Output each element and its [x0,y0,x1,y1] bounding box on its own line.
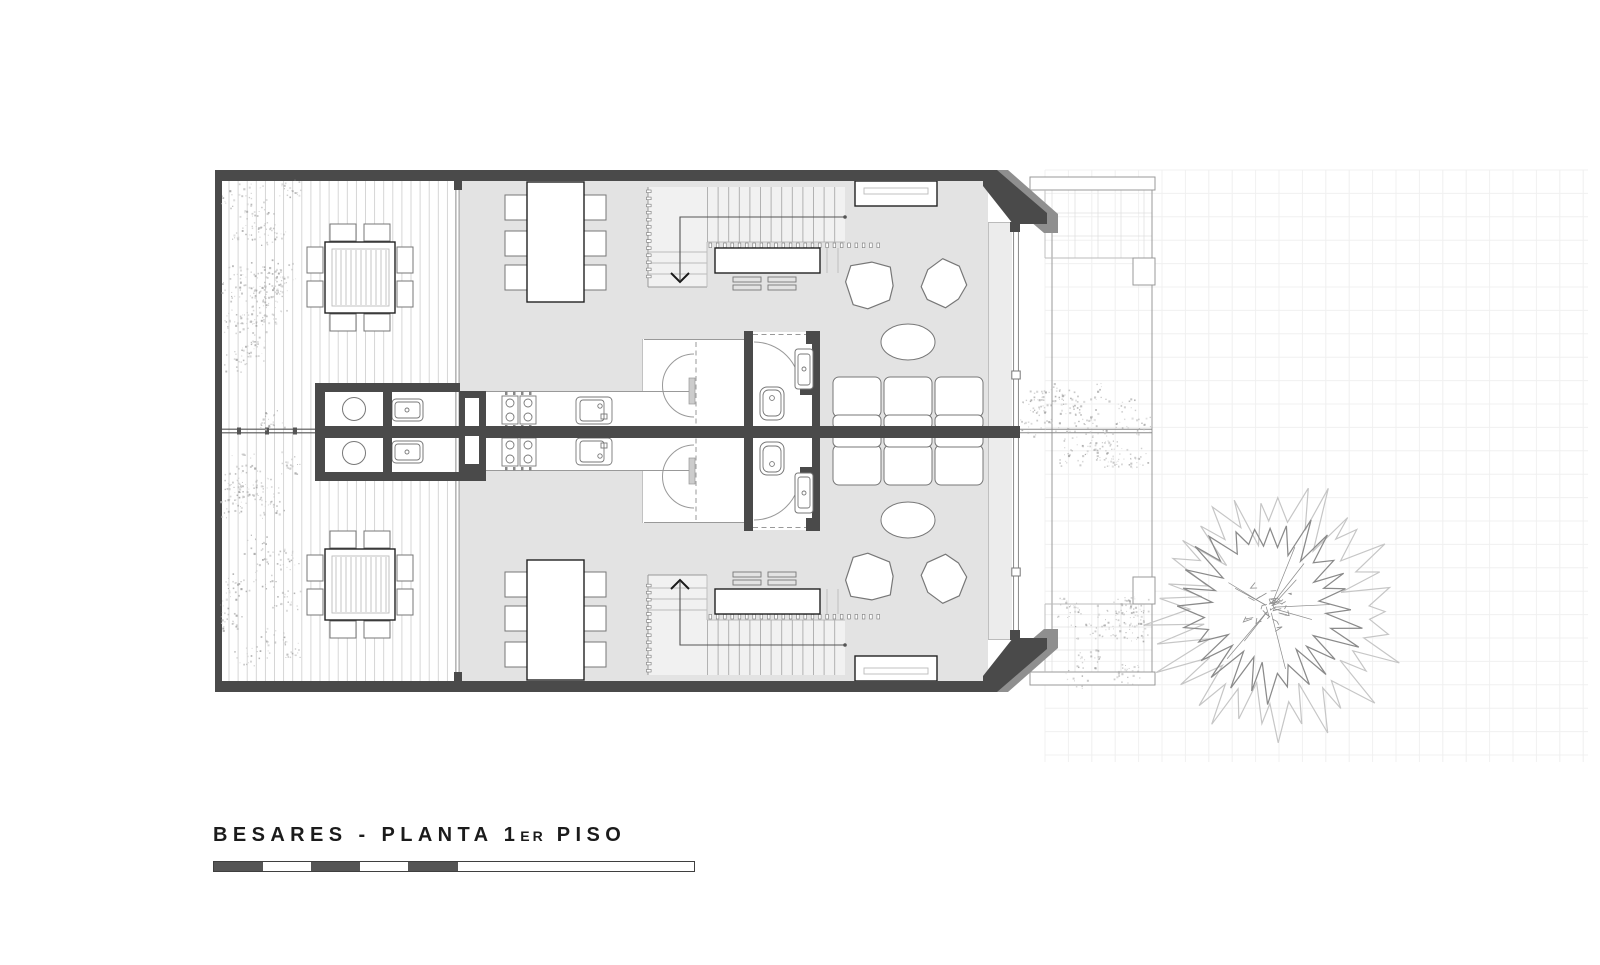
tree [1144,488,1399,743]
patio-beam-bottom [1030,672,1155,685]
deck-chair [307,247,323,273]
dining-chair [584,265,606,290]
scale-bar-segment [408,862,458,871]
title-text: BESARES - PLANTA 1 [213,824,520,846]
pivot-door-leaf [689,378,695,404]
glass-end-stub [1010,630,1020,640]
floor-plan-canvas [0,0,1600,965]
title-ordinal: ER [520,828,546,844]
deck-chair [307,281,323,307]
oval-coffee-table [881,324,935,360]
bathroom-wall [744,331,753,428]
glass-end-stub [454,672,462,681]
washbasin [795,349,813,389]
sofa-seat [833,377,881,417]
stair-landing [648,187,707,287]
deck-chair [330,314,356,331]
dining-chair [505,231,527,256]
exterior-wall-left [215,170,222,692]
fence-post [265,428,269,435]
deck-chair [397,281,413,307]
wall-heater [855,181,937,206]
fence-post [237,428,241,435]
deck-chair [397,247,413,273]
deck-chair [330,224,356,241]
party-wall [315,426,1020,438]
walkline-dot [843,215,847,219]
tree-canopy [1177,520,1362,705]
dining-chair [584,231,606,256]
scale-bar-segment [458,862,694,871]
sofa-seat [884,377,932,417]
sofa-3-seat [833,377,983,429]
bathroom-wall [806,331,820,344]
drawing-title: BESARES - PLANTA 1ER PISO [213,824,626,847]
fence-post [293,428,297,435]
title-rest: PISO [546,824,626,846]
deck-chair [364,314,390,331]
scale-bar-segment [311,862,360,871]
dining-chair [584,195,606,220]
armchair [846,262,894,309]
scale-bar-segment [214,862,263,871]
dining-chair [505,265,527,290]
b athroom [744,331,820,428]
glass-mullion [1012,371,1020,379]
dining-chair [505,195,527,220]
exterior-wall-bottom [215,681,988,692]
deck-dining-table [325,242,395,313]
scale-bar-segment [263,862,311,871]
stair-desk [715,248,820,273]
counter-block-wall [315,383,325,481]
exterior-wall-top [215,170,988,181]
glass-mullion [1012,568,1020,576]
dining-set [505,182,606,302]
scale-bar-segment [360,862,408,871]
glass-end-stub [1010,222,1020,232]
patio-beam-top [1030,177,1155,190]
garden-step-bottom [1133,577,1155,604]
floor-plan-sheet: BESARES - PLANTA 1ER PISO [0,0,1600,965]
dining-table [527,182,584,302]
outdoor-basin [343,398,366,421]
counter-block-wall [383,383,392,481]
deck-chair [364,224,390,241]
sofa-seat [935,377,983,417]
glass-end-stub [454,181,462,190]
bathroom-wall [812,395,820,428]
garden-step-top [1133,258,1155,285]
graphic-scale-bar [213,861,695,872]
toilet [760,387,784,420]
